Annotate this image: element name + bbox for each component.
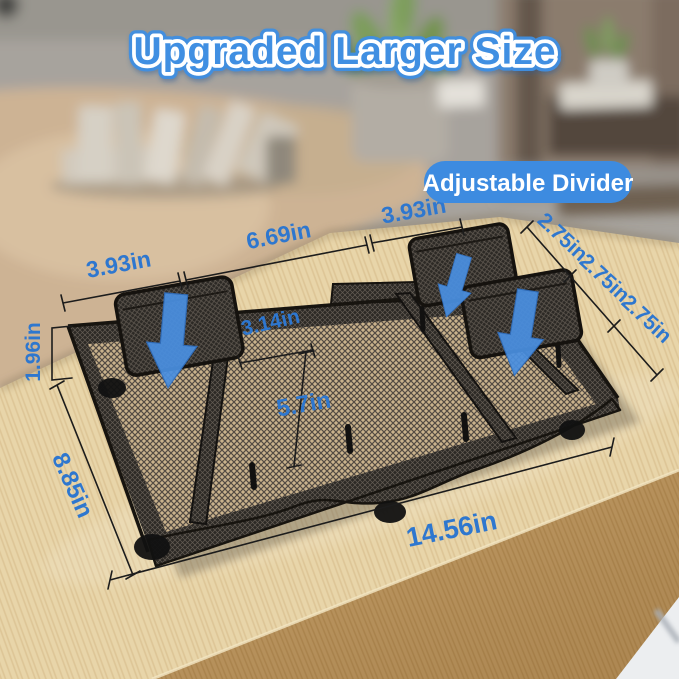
foot [374, 501, 406, 523]
white-box [438, 79, 485, 108]
sprig [603, 16, 613, 54]
headline [133, 30, 556, 73]
book [77, 105, 114, 182]
dim-label-height: 1.96in [22, 322, 45, 382]
side-table-post [516, 0, 542, 170]
foot [559, 420, 585, 440]
headline-fill [133, 30, 556, 73]
foot [134, 534, 170, 560]
feature-badge: Adjustable Divider [423, 161, 634, 203]
plant-pot [352, 76, 448, 162]
badge-label: Adjustable Divider [423, 170, 634, 197]
scene: Upgraded Larger Size [0, 0, 679, 679]
pen-cup [266, 136, 296, 184]
foot [98, 378, 126, 398]
book [115, 102, 144, 185]
product-marketing-image: Upgraded Larger Size [0, 0, 679, 679]
small-pot [590, 60, 628, 88]
